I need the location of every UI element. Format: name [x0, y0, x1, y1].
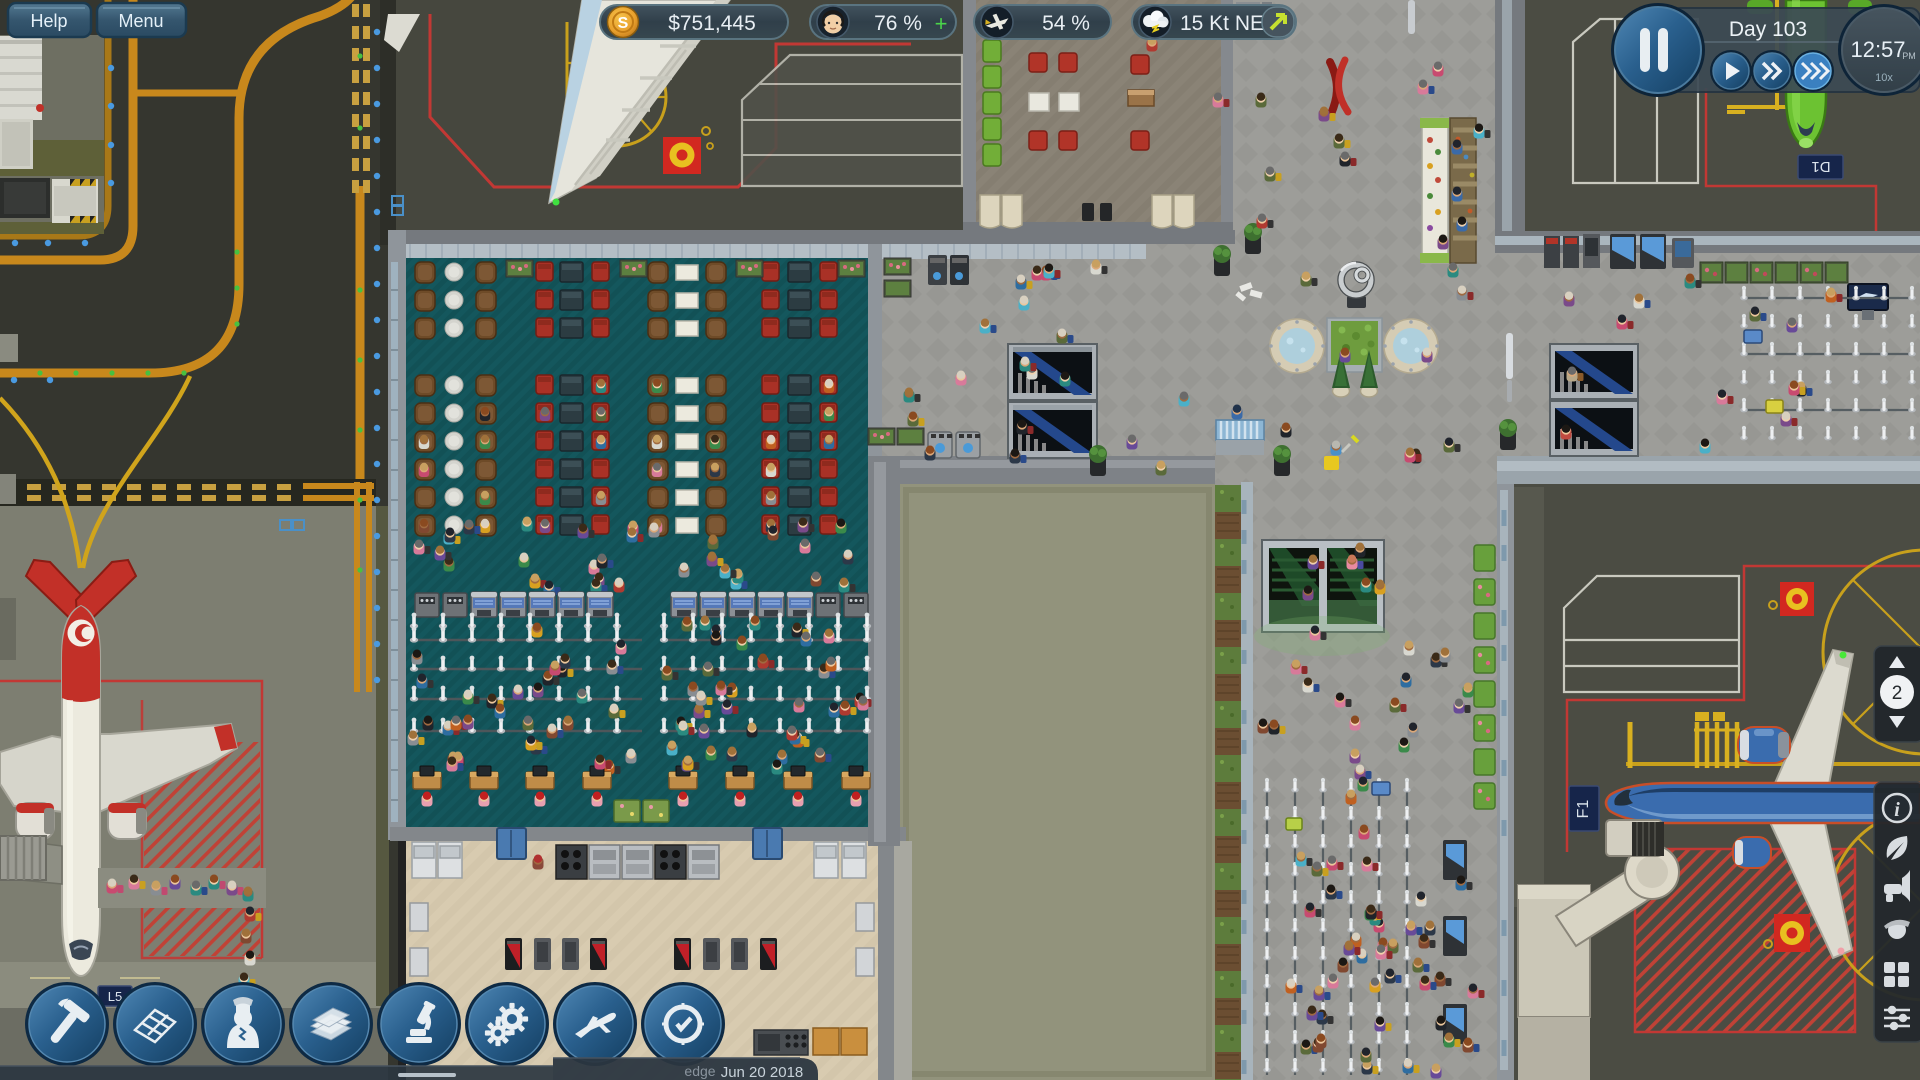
svg-text:D1: D1	[1811, 158, 1830, 175]
svg-text:PM: PM	[1902, 51, 1916, 61]
svg-text:Menu: Menu	[118, 11, 163, 31]
svg-text:i: i	[1894, 799, 1900, 821]
svg-text:Day 103: Day 103	[1729, 18, 1807, 41]
svg-text:$751,445: $751,445	[668, 12, 756, 35]
svg-text:S: S	[618, 15, 629, 32]
svg-text:10x: 10x	[1875, 72, 1893, 84]
svg-text:2: 2	[1892, 683, 1903, 704]
svg-text:15 Kt NE: 15 Kt NE	[1180, 12, 1264, 35]
svg-text:F1: F1	[1575, 800, 1592, 819]
svg-text:Help: Help	[30, 11, 67, 31]
svg-text:+: +	[935, 11, 948, 36]
svg-text:12:57: 12:57	[1850, 37, 1905, 62]
svg-text:Jun 20 2018: Jun 20 2018	[721, 1064, 804, 1080]
svg-text:edge: edge	[684, 1063, 715, 1079]
svg-text:54 %: 54 %	[1042, 12, 1090, 35]
svg-text:76 %: 76 %	[874, 12, 922, 35]
